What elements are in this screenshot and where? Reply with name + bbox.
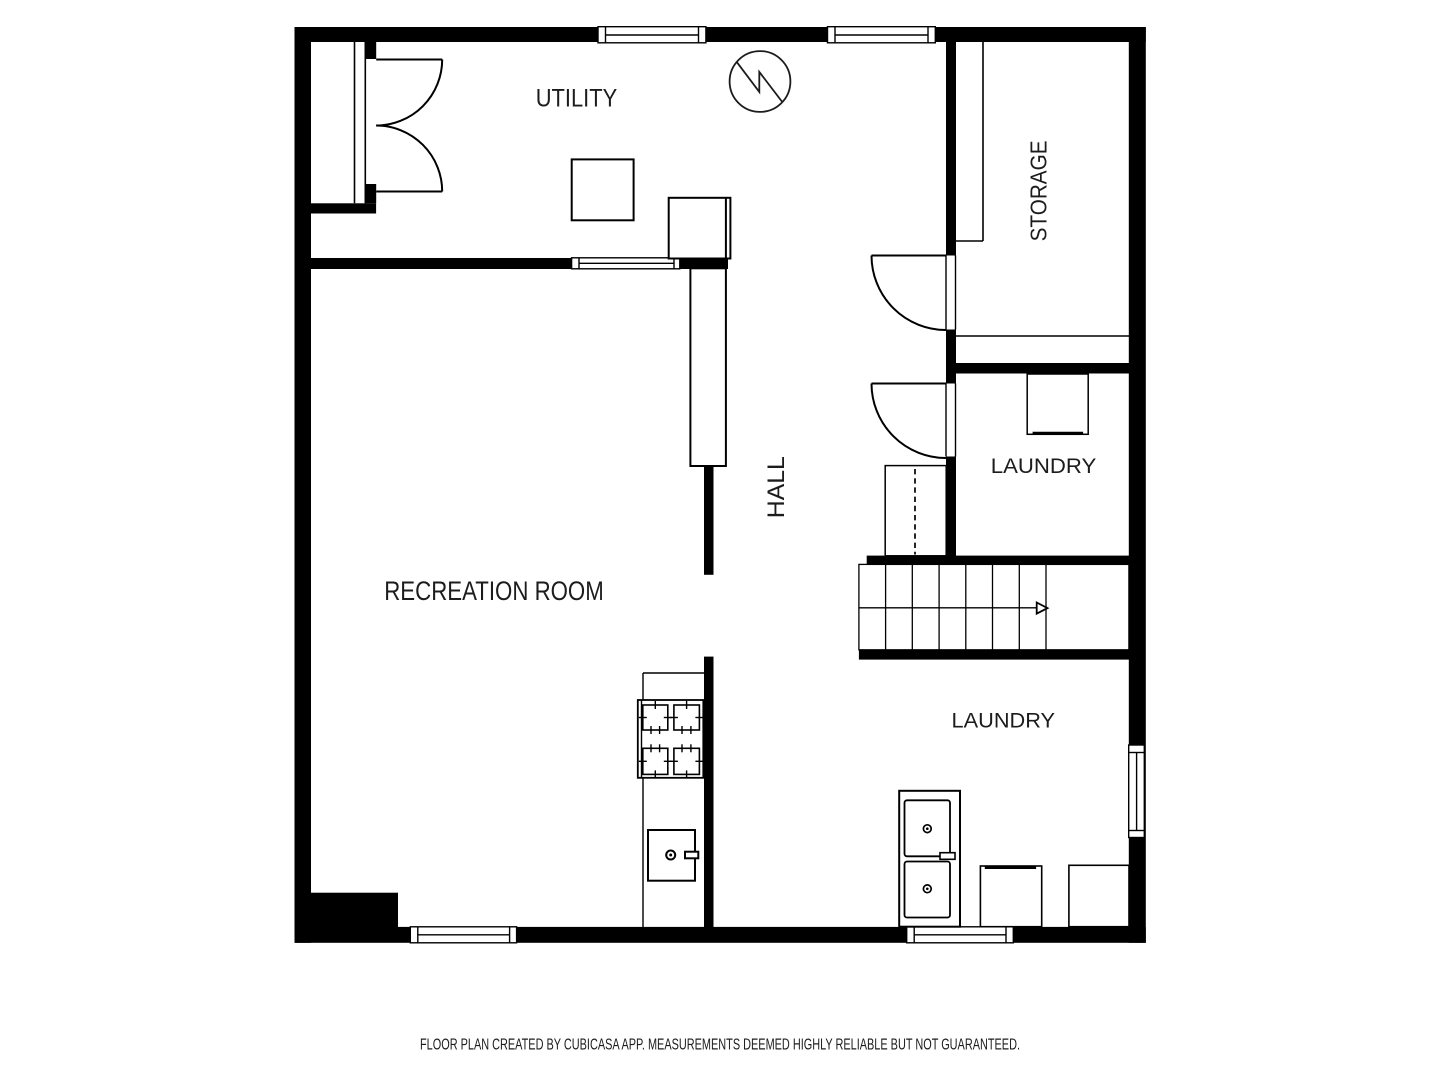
svg-text:FLOOR PLAN CREATED BY CUBICASA: FLOOR PLAN CREATED BY CUBICASA APP. MEAS…	[420, 1037, 1020, 1054]
svg-text:LAUNDRY: LAUNDRY	[952, 709, 1056, 733]
svg-text:STORAGE: STORAGE	[1026, 140, 1052, 241]
svg-text:HALL: HALL	[763, 456, 790, 518]
svg-text:RECREATION ROOM: RECREATION ROOM	[384, 576, 604, 606]
svg-text:UTILITY: UTILITY	[536, 85, 618, 113]
svg-text:LAUNDRY: LAUNDRY	[991, 454, 1097, 478]
